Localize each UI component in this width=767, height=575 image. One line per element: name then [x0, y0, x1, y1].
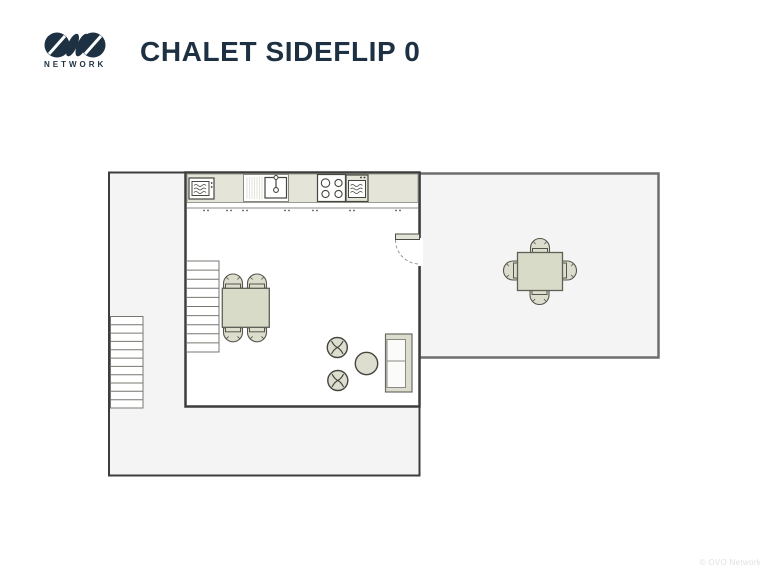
sofa [386, 334, 413, 392]
copyright-label: © OVO Network [700, 558, 761, 567]
dining-chair [248, 274, 267, 289]
dining-table [222, 288, 269, 327]
microwave-icon [189, 178, 214, 199]
terrace-chair [504, 261, 519, 280]
staircase-outer [111, 317, 144, 409]
stool [328, 371, 348, 391]
dining-chair [248, 327, 267, 342]
terrace-chair [562, 261, 577, 280]
staircase-inner [187, 261, 220, 352]
floor-plan [0, 0, 767, 575]
dining-chair [224, 274, 243, 289]
terrace-chair [530, 290, 549, 305]
kitchen-sink-icon [244, 175, 289, 202]
terrace-chair [531, 239, 550, 254]
stool [327, 338, 347, 358]
oven-icon [346, 175, 368, 202]
round-side-table [355, 352, 377, 374]
terrace-table [518, 253, 563, 291]
page: NETWORK CHALET SIDEFLIP 0 [0, 0, 767, 575]
dining-chair [224, 327, 243, 342]
hob-icon [318, 175, 346, 202]
